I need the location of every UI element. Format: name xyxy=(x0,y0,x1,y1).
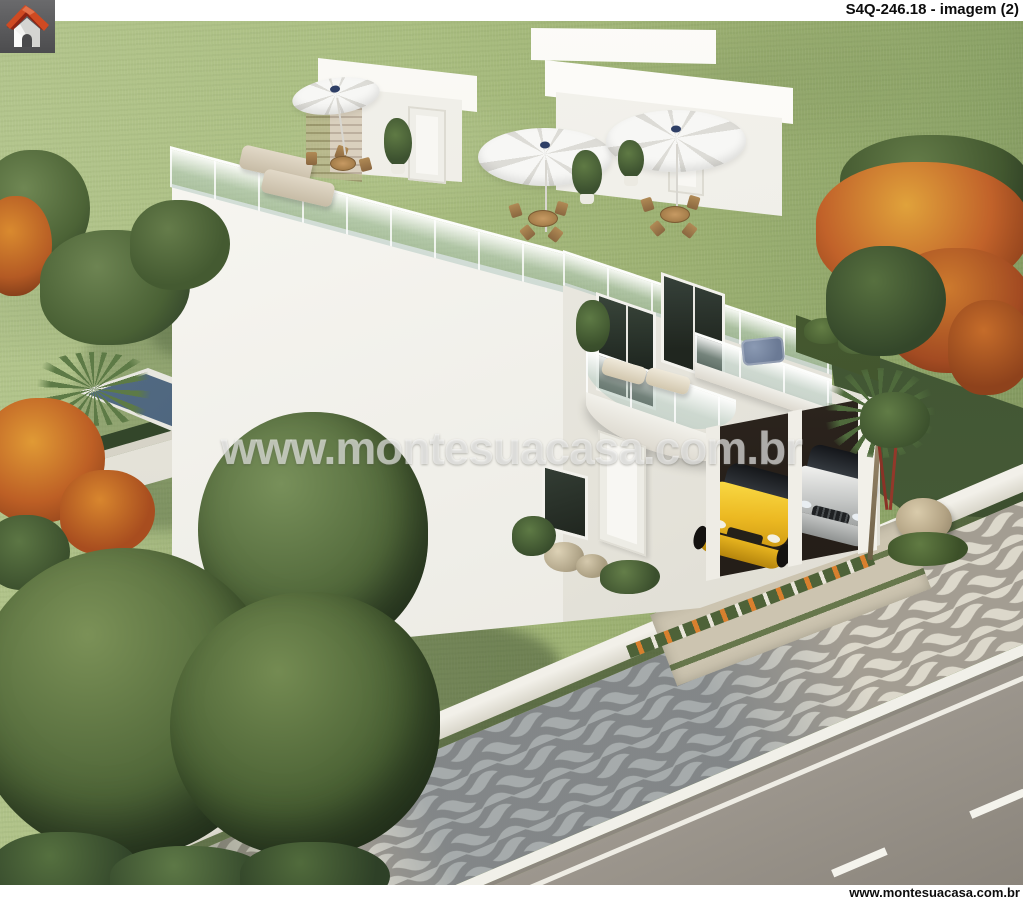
penthouse-left-door xyxy=(408,106,446,184)
patio-chair xyxy=(306,152,317,165)
patio-table xyxy=(528,210,558,227)
site-logo xyxy=(0,0,55,53)
potted-plant xyxy=(572,150,602,204)
architectural-render: www.montesuacasa.com.br S4Q-246.18 - ima… xyxy=(0,0,1023,900)
autumn-tree xyxy=(948,300,1023,395)
top-bar: S4Q-246.18 - imagem (2) xyxy=(0,0,1023,21)
site-url: www.montesuacasa.com.br xyxy=(849,885,1020,900)
watermark-text: www.montesuacasa.com.br xyxy=(0,421,1023,475)
bottom-bar: www.montesuacasa.com.br xyxy=(0,885,1023,900)
patio-table xyxy=(330,156,356,171)
potted-plant xyxy=(618,140,644,186)
terrace-armchair xyxy=(741,336,785,366)
tree xyxy=(170,592,440,857)
image-title: S4Q-246.18 - imagem (2) xyxy=(846,1,1019,18)
patio-table xyxy=(660,206,690,223)
potted-plant xyxy=(384,118,412,174)
house-logo-icon xyxy=(0,0,55,53)
